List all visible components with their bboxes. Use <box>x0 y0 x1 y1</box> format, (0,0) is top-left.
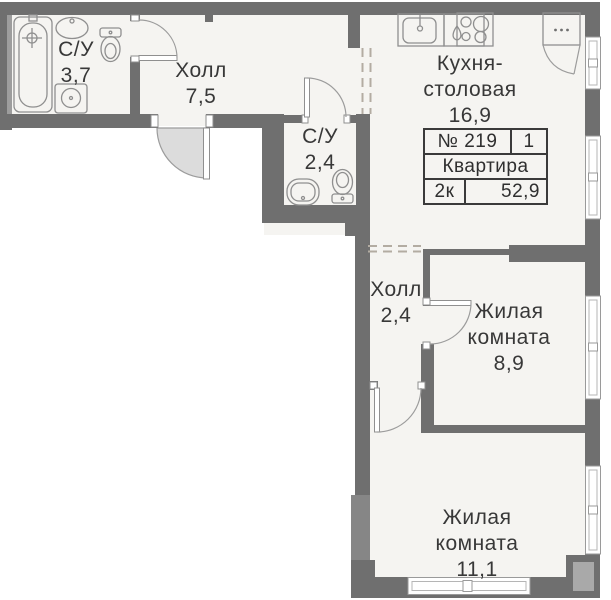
info-row-area: 2к 52,9 <box>425 178 546 203</box>
room-area: 16,9 <box>423 103 516 129</box>
room-label-hall-inner: Холл 2,4 <box>370 277 422 329</box>
room-label-kitchen: Кухня- столовая 16,9 <box>423 51 516 129</box>
room-label-hall-main: Холл 7,5 <box>175 58 227 110</box>
room-label-living-room-2: Жилая комната 11,1 <box>436 505 519 583</box>
room-area: 7,5 <box>175 84 227 110</box>
apartment-number: № 219 <box>425 130 510 153</box>
room-label-bathroom-guest: С/У 2,4 <box>302 124 338 176</box>
room-label-bathroom-main: С/У 3,7 <box>58 37 94 89</box>
entrance-door <box>157 128 210 179</box>
info-row-number: № 219 1 <box>425 130 546 153</box>
room-area: 11,1 <box>436 557 519 583</box>
floor-plan: С/У 3,7 Холл 7,5 С/У 2,4 Кухня- столовая… <box>0 0 611 600</box>
room-area: 2,4 <box>302 150 338 176</box>
window-living-room-1 <box>586 296 601 399</box>
window-living-room-2-side <box>586 466 601 554</box>
room-area: 8,9 <box>468 351 551 377</box>
room-label-living-room-1: Жилая комната 8,9 <box>468 299 551 377</box>
apartment-rooms-count: 2к <box>425 180 466 203</box>
window-kitchen-2 <box>586 136 601 219</box>
info-row-type: Квартира <box>425 153 546 178</box>
apartment-section: 1 <box>510 130 546 153</box>
room-area: 2,4 <box>370 303 422 329</box>
room-area: 3,7 <box>58 63 94 89</box>
apartment-type: Квартира <box>425 155 546 178</box>
window-kitchen-1 <box>586 37 601 89</box>
apartment-total-area: 52,9 <box>466 180 546 203</box>
apartment-info-table: № 219 1 Квартира 2к 52,9 <box>423 128 548 205</box>
